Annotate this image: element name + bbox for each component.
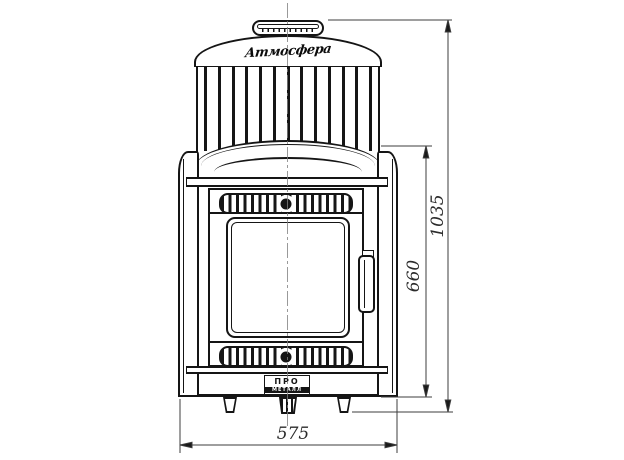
dimension-label-body-height: 660 <box>404 246 424 306</box>
leg-right <box>337 397 351 413</box>
convector-bar <box>355 66 358 152</box>
vent-knob-top <box>281 198 292 209</box>
dimension-label-overall-width: 575 <box>263 424 323 444</box>
side-panel-right <box>377 151 398 397</box>
leg-right-fill <box>339 399 349 411</box>
door-glass <box>226 217 350 338</box>
technical-drawing-canvas: Атмосфера ПРО МЕТАЛЛ <box>0 0 624 460</box>
top-dome: Атмосфера <box>194 35 382 67</box>
convector-bar <box>314 66 317 152</box>
chimney-collar <box>252 20 324 36</box>
convector-bar <box>328 66 331 152</box>
leg-center-fill <box>281 399 295 412</box>
convector-bar <box>259 66 262 152</box>
leg-left-fill <box>225 399 235 411</box>
chimney-collar-ticks <box>262 28 314 32</box>
leg-left <box>223 397 237 413</box>
side-panel-left <box>178 151 199 397</box>
leg-center <box>279 397 297 414</box>
vent-grille-top <box>219 193 353 214</box>
convector-bar <box>232 66 235 152</box>
vent-band-bottom <box>210 341 362 365</box>
dimension-label-overall-height: 1035 <box>428 186 448 246</box>
vent-band-top <box>210 190 362 214</box>
vent-grille-bottom <box>219 346 353 367</box>
convector-bar <box>273 66 276 152</box>
brand-plate: ПРО МЕТАЛЛ <box>264 375 310 395</box>
door-lintel-arch <box>214 157 362 179</box>
side-panel-left-line <box>183 159 184 393</box>
brand-plate-bottom-text: МЕТАЛЛ <box>265 387 309 393</box>
door-handle <box>358 255 375 313</box>
convector-bar <box>342 66 345 152</box>
vent-knob-bottom <box>281 351 292 362</box>
bottom-trim <box>186 366 388 374</box>
brand-script-logo: Атмосфера <box>195 39 381 64</box>
brand-plate-top-text: ПРО <box>265 376 309 387</box>
convector-bar <box>204 66 207 152</box>
top-shelf <box>186 177 388 187</box>
side-panel-right-line <box>392 159 393 393</box>
convector-bar <box>369 66 372 152</box>
convector-bar <box>245 66 248 152</box>
convector-bar <box>300 66 303 152</box>
door-glass-inner-line <box>231 222 345 333</box>
door-handle-line <box>364 260 365 308</box>
dimension-line-body-height <box>423 146 429 397</box>
convector-bar <box>218 66 221 152</box>
